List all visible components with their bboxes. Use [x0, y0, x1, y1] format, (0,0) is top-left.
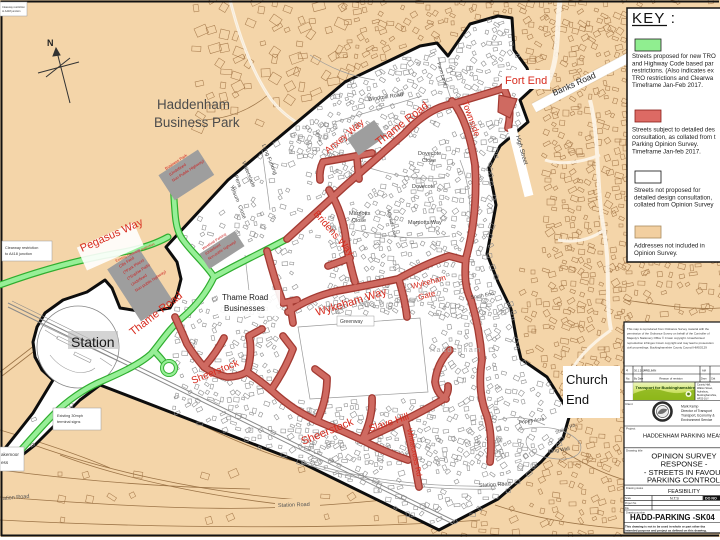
svg-text:reproduction infringes Crown c: reproduction infringes Crown copyright a… — [627, 341, 714, 345]
svg-text:Station Road: Station Road — [278, 502, 310, 509]
svg-text:Marriotts: Marriotts — [349, 211, 371, 217]
svg-text:terminal signs: terminal signs — [57, 420, 81, 424]
svg-text:collated from Opinion Survey: collated from Opinion Survey — [634, 202, 714, 209]
svg-text:Drawing title: Drawing title — [626, 449, 643, 453]
svg-text:Project: Project — [626, 427, 636, 431]
svg-text:Dovecote: Dovecote — [418, 151, 441, 157]
svg-text:Environment Service: Environment Service — [681, 418, 712, 422]
svg-text:Clearway restriction: Clearway restriction — [2, 5, 25, 9]
svg-text:N: N — [47, 38, 54, 48]
svg-text:Church: Church — [566, 372, 608, 387]
svg-text:Thame Road: Thame Road — [222, 293, 268, 302]
svg-text:Client: Client — [625, 402, 633, 406]
svg-text:No.: No. — [626, 377, 630, 381]
svg-text:civil proceedings. Buckinghams: civil proceedings. Buckinghamshire Count… — [627, 345, 707, 349]
svg-text:Dovecote: Dovecote — [412, 184, 435, 190]
svg-text:Fort End: Fort End — [505, 75, 547, 87]
svg-text:PRELIMIN: PRELIMIN — [644, 369, 656, 373]
svg-text:and Highway Code based par: and Highway Code based par — [632, 60, 714, 67]
svg-text:PARKING CONTROLS: PARKING CONTROLS — [647, 476, 720, 485]
svg-text:HADD-PARKING -SK04: HADD-PARKING -SK04 — [630, 513, 715, 522]
svg-text:TRO restrictions and Clearwa: TRO restrictions and Clearwa — [632, 75, 714, 82]
svg-text:Project No: Project No — [625, 502, 637, 505]
svg-text:Marriotts Way: Marriotts Way — [408, 220, 442, 226]
svg-text:KEY :: KEY : — [632, 10, 676, 27]
svg-text:Mark Kemp: Mark Kemp — [681, 405, 698, 409]
svg-text:intended purpose and project a: intended purpose and project as defined … — [625, 529, 707, 533]
svg-text:Drwn: Drwn — [701, 378, 707, 381]
svg-text:Opinion Survey.: Opinion Survey. — [634, 250, 678, 257]
svg-text:Business Park: Business Park — [154, 115, 240, 130]
svg-text:Station: Station — [71, 334, 115, 350]
svg-text:End: End — [566, 392, 589, 407]
svg-text:Close: Close — [422, 158, 436, 164]
svg-text:DO NO: DO NO — [705, 497, 717, 501]
svg-text:Transport for Buckinghamshire: Transport for Buckinghamshire — [636, 385, 696, 390]
svg-text:Timeframe Jan-Feb 2017.: Timeframe Jan-Feb 2017. — [632, 82, 703, 89]
svg-text:to A418 junction: to A418 junction — [5, 252, 32, 256]
svg-text:consultation, as collated from: consultation, as collated from t — [632, 134, 716, 141]
svg-text:File: File — [625, 507, 630, 510]
svg-text:Clearway restriction: Clearway restriction — [5, 246, 38, 250]
svg-text:Reason of revision: Reason of revision — [659, 377, 683, 381]
svg-text:Existing 30mph: Existing 30mph — [57, 414, 83, 418]
svg-text:restrictions. (Also indicates: restrictions. (Also indicates ex — [632, 68, 715, 75]
svg-text:Scale: Scale — [625, 497, 632, 500]
svg-text:Transport, Economy &: Transport, Economy & — [681, 414, 715, 418]
svg-text:Haddenham: Haddenham — [157, 97, 230, 112]
svg-text:ess: ess — [1, 460, 9, 465]
svg-text:FEASIBILITY: FEASIBILITY — [668, 489, 700, 495]
svg-text:akemoor: akemoor — [1, 452, 19, 457]
svg-text:Parking Opinion Survey.: Parking Opinion Survey. — [632, 141, 699, 148]
svg-text:Director of Transport: Director of Transport — [681, 409, 712, 413]
svg-text:Majesty's Stationery Office ©: Majesty's Stationery Office © Crown copy… — [627, 336, 705, 340]
svg-text:Streets subject to detailed de: Streets subject to detailed des — [632, 127, 715, 134]
svg-text:This map is reproduced from Or: This map is reproduced from Ordnance Sur… — [627, 327, 709, 331]
svg-text:HP20 1UY: HP20 1UY — [697, 398, 709, 401]
svg-text:Greenway: Greenway — [340, 319, 363, 325]
svg-text:Addresses not included in: Addresses not included in — [634, 243, 705, 250]
svg-text:N.T.S: N.T.S — [670, 497, 679, 501]
svg-text:4: 4 — [626, 369, 628, 373]
svg-text:Streets not proposed for: Streets not proposed for — [634, 187, 700, 194]
svg-text:to A418 junction: to A418 junction — [2, 9, 21, 13]
svg-text:AM: AM — [702, 369, 706, 373]
svg-text:Timeframe Jan-feb 2017.: Timeframe Jan-feb 2017. — [632, 148, 701, 155]
svg-text:Haddenham: Haddenham — [430, 347, 482, 354]
svg-text:Streets proposed for new TRO: Streets proposed for new TRO — [632, 53, 716, 60]
svg-text:Businesses: Businesses — [224, 304, 265, 313]
svg-text:permission of the Ordnance Sur: permission of the Ordnance Survey on beh… — [627, 332, 710, 336]
svg-text:Close: Close — [352, 218, 366, 224]
svg-text:detailed design consultation,: detailed design consultation, — [634, 194, 712, 201]
svg-text:HADDENHAM PARKING MEASURES: HADDENHAM PARKING MEASURES — [643, 434, 720, 440]
svg-text:Drawing status: Drawing status — [626, 486, 644, 490]
svg-text:By Date: By Date — [634, 377, 644, 381]
